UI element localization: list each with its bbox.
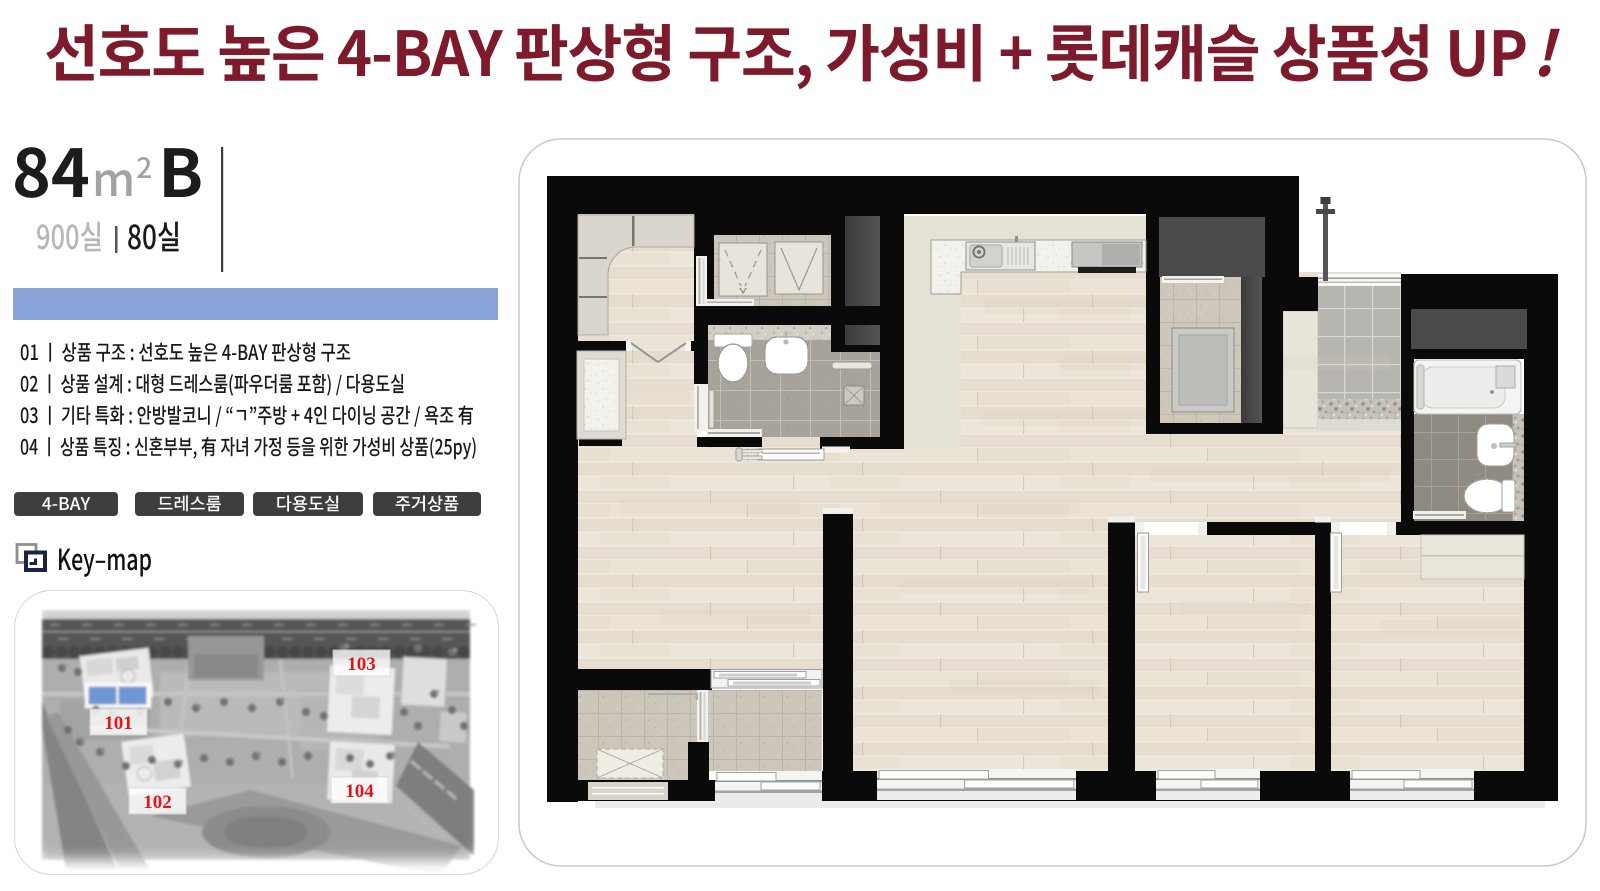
svg-text:104: 104 bbox=[345, 781, 374, 802]
svg-text:103: 103 bbox=[347, 654, 376, 675]
svg-text:102: 102 bbox=[143, 792, 172, 813]
svg-text:101: 101 bbox=[104, 713, 133, 734]
